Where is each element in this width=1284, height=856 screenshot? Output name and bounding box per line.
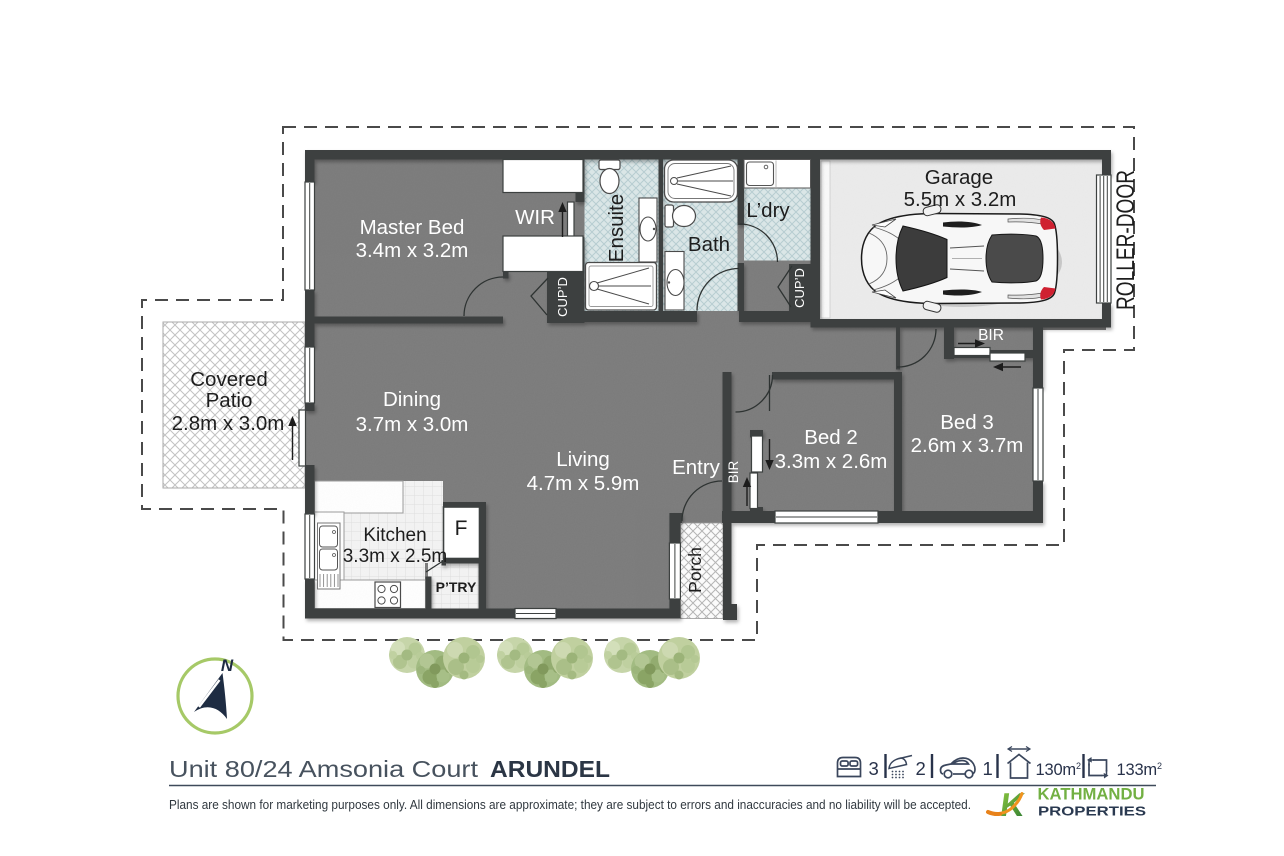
svg-text:Porch: Porch (685, 547, 705, 593)
svg-text:CUP’D: CUP’D (555, 277, 570, 317)
svg-text:3.4m x 3.2m: 3.4m x 3.2m (356, 239, 469, 262)
svg-text:P’TRY: P’TRY (436, 579, 477, 595)
svg-text:Patio: Patio (206, 389, 253, 412)
svg-text:CUP’D: CUP’D (792, 268, 807, 308)
svg-text:133m2: 133m2 (1117, 761, 1162, 779)
svg-text:Master Bed: Master Bed (360, 216, 465, 239)
svg-text:3.3m x 2.5m: 3.3m x 2.5m (343, 546, 448, 567)
svg-text:ARUNDEL: ARUNDEL (490, 756, 610, 782)
svg-text:4.7m x 5.9m: 4.7m x 5.9m (527, 472, 640, 495)
svg-text:KATHMANDU: KATHMANDU (1038, 786, 1145, 804)
svg-text:5.5m x 3.2m: 5.5m x 3.2m (904, 188, 1017, 211)
svg-text:2: 2 (916, 758, 926, 779)
svg-text:Covered: Covered (190, 368, 268, 391)
svg-text:Bed 3: Bed 3 (940, 411, 994, 434)
svg-text:1: 1 (983, 758, 993, 779)
svg-text:Plans are shown for marketing: Plans are shown for marketing purposes o… (169, 798, 971, 812)
svg-text:WIR: WIR (515, 206, 555, 229)
svg-text:Entry: Entry (672, 456, 721, 479)
svg-text:ROLLER-DOOR: ROLLER-DOOR (1112, 170, 1140, 310)
svg-text:PROPERTIES: PROPERTIES (1038, 804, 1146, 819)
svg-text:BIR: BIR (978, 327, 1004, 344)
svg-text:3.7m x 3.0m: 3.7m x 3.0m (356, 413, 469, 436)
svg-text:Ensuite: Ensuite (605, 194, 628, 262)
svg-text:2.6m x 3.7m: 2.6m x 3.7m (911, 434, 1024, 457)
svg-text:2.8m x 3.0m: 2.8m x 3.0m (172, 412, 285, 435)
svg-text:Living: Living (556, 448, 610, 471)
svg-text:Bath: Bath (688, 233, 730, 256)
svg-text:3.3m x 2.6m: 3.3m x 2.6m (775, 450, 888, 473)
svg-text:Garage: Garage (925, 166, 993, 189)
svg-text:Kitchen: Kitchen (363, 525, 426, 546)
svg-text:3: 3 (869, 758, 879, 779)
svg-text:F: F (455, 517, 468, 540)
svg-text:L’dry: L’dry (746, 199, 790, 222)
svg-text:BIR: BIR (726, 461, 741, 484)
svg-text:N: N (221, 656, 234, 675)
svg-text:Bed 2: Bed 2 (804, 426, 858, 449)
svg-text:Unit 80/24 Amsonia Court: Unit 80/24 Amsonia Court (169, 756, 479, 782)
svg-text:Dining: Dining (383, 388, 441, 411)
svg-text:130m2: 130m2 (1036, 761, 1081, 779)
